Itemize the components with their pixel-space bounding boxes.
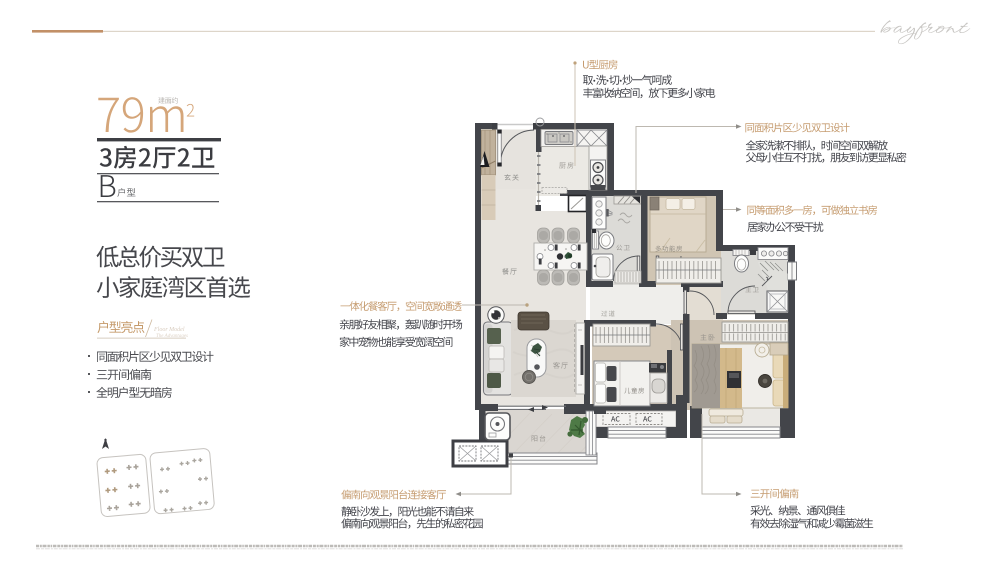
svg-text:Floor Model: Floor Model — [153, 327, 185, 333]
